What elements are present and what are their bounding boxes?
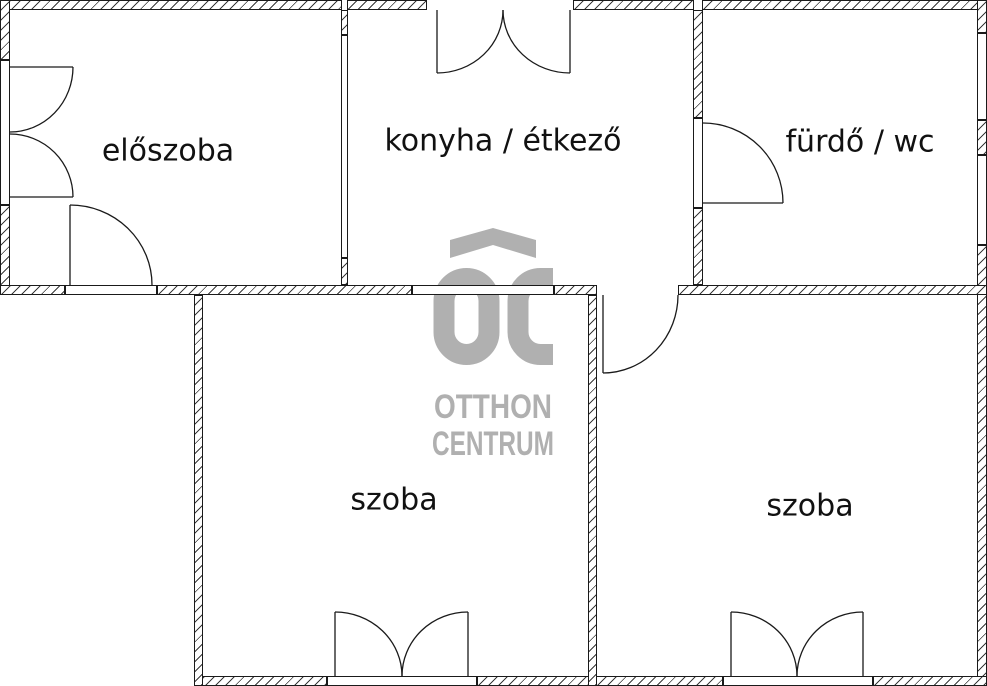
joint-slit-top-wall-2 [693, 0, 703, 10]
wall-mid-seg2 [157, 285, 412, 295]
wall-bottom-left-segment [194, 676, 327, 686]
door-left-wall-lower [10, 134, 73, 197]
french-door-threshold-left [327, 676, 477, 686]
wall-bottom-right-segment [873, 676, 987, 686]
partition-konyha-furdo-upper [693, 10, 703, 118]
entrance-door-threshold [65, 285, 157, 295]
watermark-line2: CENTRUM [432, 425, 554, 463]
roof-chevron-icon [450, 228, 536, 258]
room-label-szoba-left: szoba [350, 483, 437, 518]
partition-konyha-furdo-lower [693, 208, 703, 285]
room-label-szoba-right: szoba [766, 489, 853, 524]
french-door-szoba-left [335, 612, 468, 676]
wall-right-lower-segment [977, 245, 987, 686]
wall-szoba-left-exterior [194, 295, 203, 686]
door-left-wall-upper [10, 67, 73, 132]
konyha-szoba-window-band [412, 285, 554, 295]
wall-right-upper-segment [977, 0, 987, 33]
french-door-szoba-right [731, 612, 863, 676]
joint-slit-top-wall-1 [341, 0, 348, 10]
wall-mid-seg4 [678, 285, 987, 295]
wall-top-left-segment [0, 0, 427, 10]
door-bathroom [703, 123, 783, 203]
partition-eloszoba-konyha-stub-top [341, 10, 348, 35]
wall-mid-seg1 [0, 285, 65, 295]
bathroom-door-opening [693, 118, 703, 208]
watermark-line1: OTTHON [434, 388, 552, 426]
room-label-konyha-etkezo: konyha / étkező [384, 124, 621, 159]
room-label-furdo-wc: fürdő / wc [786, 125, 935, 160]
partition-eloszoba-konyha-body [341, 35, 348, 258]
bathroom-window-upper [977, 33, 987, 120]
room-label-eloszoba: előszoba [102, 134, 234, 169]
wall-right-mid-segment [977, 120, 987, 155]
wall-top-right-segment [573, 0, 987, 10]
french-door-threshold-right [723, 676, 873, 686]
bathroom-window-lower [977, 155, 987, 245]
wall-bottom-mid-segment [477, 676, 723, 686]
door-szoba-right-entry [603, 295, 678, 373]
otthon-centrum-watermark: OTTHON CENTRUM [420, 224, 580, 464]
floorplan-canvas: OTTHON CENTRUM [0, 0, 987, 686]
partition-eloszoba-konyha-stub-bottom [341, 258, 348, 285]
door-kitchen-double [437, 10, 570, 73]
entry-hall-side-door-opening [0, 60, 10, 205]
wall-left-upper-segment [0, 0, 10, 60]
wall-mid-seg3 [554, 285, 597, 295]
partition-szoba-divider [588, 295, 597, 686]
door-entrance [70, 205, 152, 285]
wall-left-lower-segment [0, 205, 10, 295]
